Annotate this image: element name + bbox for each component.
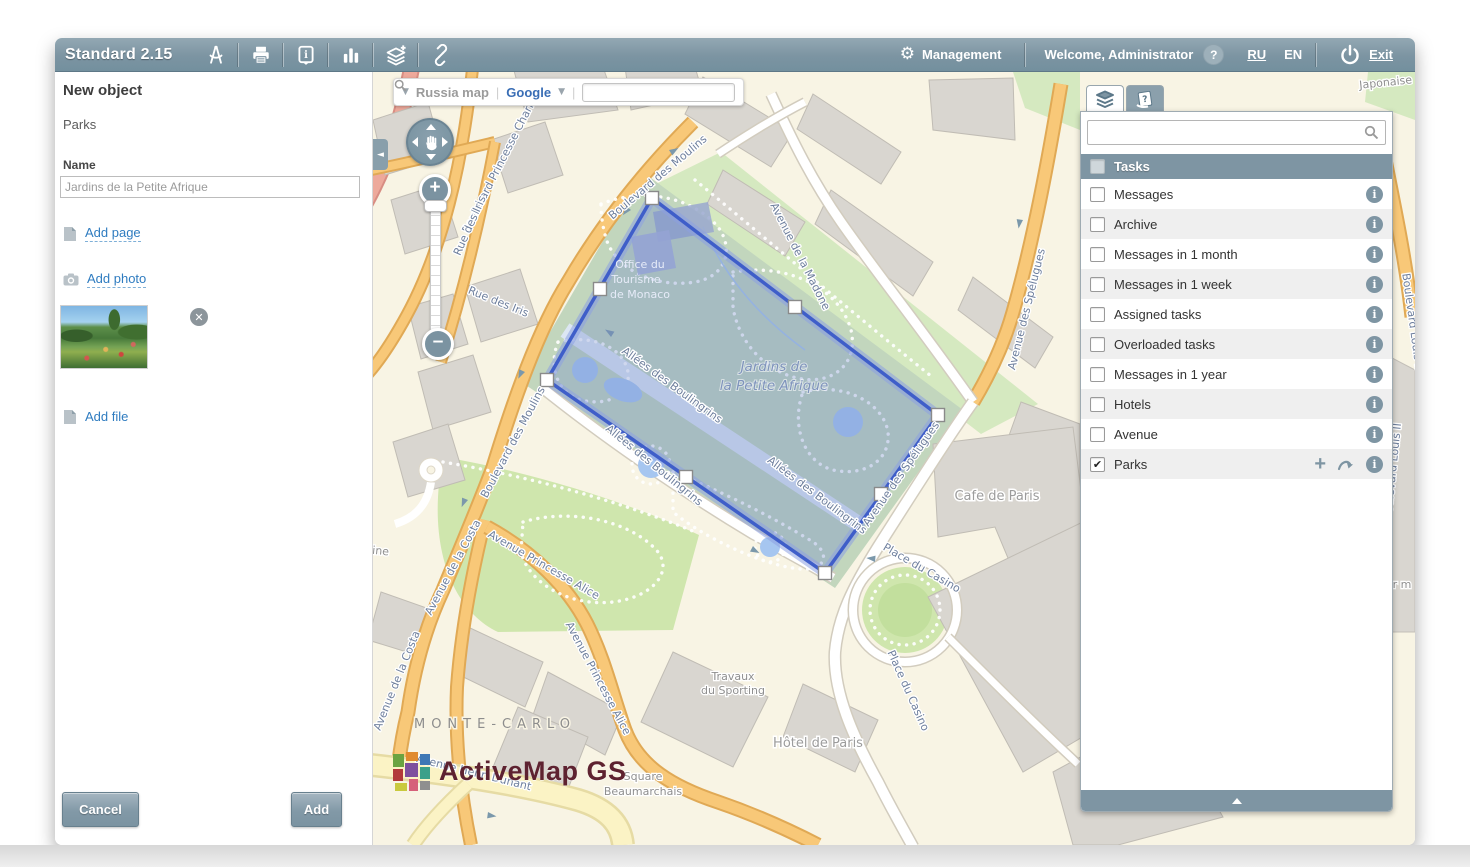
layers-icon <box>1094 89 1116 109</box>
pan-right-icon[interactable] <box>442 137 448 147</box>
search-icon <box>394 79 407 92</box>
cancel-button[interactable]: Cancel <box>62 792 139 827</box>
layer-label: Avenue <box>1114 427 1158 442</box>
layer-checkbox[interactable] <box>1090 217 1105 232</box>
help-icon[interactable]: ? <box>1203 44 1224 65</box>
layer-checkbox[interactable] <box>1090 427 1105 442</box>
zoom-slider-handle[interactable] <box>424 200 447 212</box>
name-input[interactable] <box>60 176 360 198</box>
map-label: la Petite Afrique <box>720 378 828 394</box>
toolbar-separator <box>238 43 239 67</box>
map-select[interactable]: Russia map <box>416 85 489 100</box>
task-row-avenue[interactable]: Avenuei <box>1081 419 1392 449</box>
title-bar: Standard 2.15 i <box>55 38 1415 72</box>
lang-ru-button[interactable]: RU <box>1247 47 1266 62</box>
chevron-up-icon <box>1232 798 1242 804</box>
tasks-group-header[interactable]: Tasks <box>1081 154 1392 179</box>
info-icon[interactable]: i <box>1366 456 1383 473</box>
map-label: de Monaco <box>610 288 670 301</box>
info-icon[interactable]: i <box>1366 216 1383 233</box>
collapse-panel-bar[interactable] <box>1081 790 1392 811</box>
add-object-icon[interactable]: + <box>1314 454 1326 474</box>
reply-arrow-icon[interactable] <box>1337 457 1355 471</box>
add-photo-row: Add photo <box>63 271 146 288</box>
layer-checkbox[interactable] <box>1090 187 1105 202</box>
exit-button[interactable]: Exit <box>1322 43 1415 67</box>
add-button[interactable]: Add <box>291 792 342 827</box>
svg-text:i: i <box>304 49 308 60</box>
map-label: r m <box>1393 578 1412 591</box>
app-title: Standard 2.15 <box>65 46 173 64</box>
pan-control[interactable] <box>406 118 454 166</box>
layer-name: Parks <box>63 117 96 132</box>
task-row-messages[interactable]: Messagesi <box>1081 179 1392 209</box>
print-icon[interactable] <box>244 42 278 68</box>
task-row-messages-in-1-year[interactable]: Messages in 1 yeari <box>1081 359 1392 389</box>
tasks-group-label: Tasks <box>1114 159 1150 174</box>
info-icon[interactable]: i <box>1366 306 1383 323</box>
map-label: MONTE-CARLO <box>414 717 576 732</box>
map-label: Travaux <box>710 670 755 683</box>
info-icon[interactable]: i <box>1366 246 1383 263</box>
add-file-link[interactable]: Add file <box>85 409 128 425</box>
file-icon <box>63 409 77 425</box>
task-row-messages-in-1-month[interactable]: Messages in 1 monthi <box>1081 239 1392 269</box>
panel-title: New object <box>63 82 142 99</box>
power-icon <box>1338 43 1362 67</box>
window-bottom-shadow <box>0 845 1470 867</box>
layer-checkbox[interactable] <box>1090 307 1105 322</box>
toolbar-icons: i <box>199 38 458 71</box>
task-row-assigned-tasks[interactable]: Assigned tasksi <box>1081 299 1392 329</box>
layer-label: Archive <box>1114 217 1157 232</box>
zoom-out-button[interactable]: – <box>422 328 454 360</box>
info-icon[interactable]: i <box>1366 396 1383 413</box>
toolbar-separator <box>283 43 284 67</box>
info-icon[interactable]: i <box>1366 276 1383 293</box>
map-search-input[interactable] <box>582 83 735 102</box>
new-object-panel: New object Parks Name Add page Add photo… <box>55 72 373 845</box>
statistics-icon[interactable] <box>334 42 368 68</box>
info-icon[interactable]: i <box>1366 426 1383 443</box>
camera-icon <box>63 273 79 286</box>
layer-label: Messages in 1 month <box>1114 247 1238 262</box>
activemap-logo: ActiveMap GS <box>391 750 627 792</box>
task-layer-list: MessagesiArchiveiMessages in 1 monthiMes… <box>1081 179 1392 479</box>
activemap-logo-icon <box>391 750 433 792</box>
add-layer-icon[interactable] <box>379 42 413 68</box>
gear-icon: ⚙ <box>900 46 915 63</box>
info-book-icon[interactable]: i <box>289 42 323 68</box>
layer-checkbox[interactable] <box>1090 367 1105 382</box>
layer-label: Assigned tasks <box>1114 307 1201 322</box>
name-label: Name <box>63 158 96 172</box>
map-label: Jardins de <box>738 359 808 375</box>
exit-label: Exit <box>1369 47 1393 62</box>
map-label: Office du <box>615 258 665 271</box>
task-row-archive[interactable]: Archivei <box>1081 209 1392 239</box>
page-icon <box>63 226 77 242</box>
management-button[interactable]: ⚙ Management <box>882 46 1020 63</box>
legend-help-icon: ? <box>1134 89 1156 109</box>
layer-checkbox[interactable]: ✔ <box>1090 457 1105 472</box>
remove-photo-icon[interactable]: ✕ <box>190 308 208 326</box>
app-window: Standard 2.15 i <box>55 38 1415 845</box>
separator: | <box>496 85 499 100</box>
hand-icon <box>422 133 442 153</box>
chevron-down-icon[interactable]: ▼ <box>558 87 565 97</box>
layers-panel: ? Tasks MessagesiArchiveiMessages in 1 m… <box>1080 85 1393 812</box>
toolbar-separator <box>328 43 329 67</box>
layer-label: Overloaded tasks <box>1114 337 1215 352</box>
pan-left-icon[interactable] <box>412 137 418 147</box>
tasks-group-checkbox[interactable] <box>1090 159 1105 174</box>
lang-en-button[interactable]: EN <box>1284 47 1302 62</box>
layer-label: Messages in 1 year <box>1114 367 1227 382</box>
layer-label: Messages <box>1114 187 1173 202</box>
task-row-overloaded-tasks[interactable]: Overloaded tasksi <box>1081 329 1392 359</box>
pan-up-icon[interactable] <box>426 124 436 130</box>
toolbar-separator <box>1025 43 1026 67</box>
tab-layers[interactable] <box>1086 85 1124 112</box>
photo-thumbnail[interactable] <box>60 305 148 369</box>
add-file-row: Add file <box>63 409 128 425</box>
map-label: Tourisme <box>610 273 661 286</box>
layer-checkbox[interactable] <box>1090 337 1105 352</box>
info-icon[interactable]: i <box>1366 186 1383 203</box>
map-label: Square <box>624 770 663 783</box>
add-page-link[interactable]: Add page <box>85 225 141 242</box>
search-icon <box>1364 125 1379 140</box>
map-label: Cafe de Paris <box>954 489 1039 504</box>
layers-panel-body: Tasks MessagesiArchiveiMessages in 1 mon… <box>1080 111 1393 812</box>
welcome-area: Welcome, Administrator ? <box>1031 44 1239 65</box>
panel-tabs: ? <box>1086 85 1164 112</box>
collapse-panel-button[interactable]: ◄ <box>373 139 388 170</box>
info-icon[interactable]: i <box>1366 336 1383 353</box>
measure-compass-icon[interactable] <box>199 42 233 68</box>
layer-label: Hotels <box>1114 397 1151 412</box>
layer-checkbox[interactable] <box>1090 277 1105 292</box>
task-row-parks[interactable]: ✔Parks+i <box>1081 449 1392 479</box>
separator: | <box>572 85 575 100</box>
add-photo-link[interactable]: Add photo <box>87 271 146 288</box>
task-row-messages-in-1-week[interactable]: Messages in 1 weeki <box>1081 269 1392 299</box>
layer-label: Messages in 1 week <box>1114 277 1232 292</box>
welcome-text: Welcome, Administrator <box>1045 47 1194 62</box>
share-link-icon[interactable] <box>424 42 458 68</box>
map-label: Hôtel de Paris <box>773 736 863 751</box>
info-icon[interactable]: i <box>1366 366 1383 383</box>
provider-select[interactable]: Google <box>506 85 551 100</box>
activemap-logo-text: ActiveMap GS <box>439 756 627 787</box>
task-row-hotels[interactable]: Hotelsi <box>1081 389 1392 419</box>
add-page-row: Add page <box>63 225 141 242</box>
pan-down-icon[interactable] <box>426 154 436 160</box>
layer-checkbox[interactable] <box>1090 397 1105 412</box>
toolbar-separator <box>418 43 419 67</box>
map-label: du Sporting <box>701 684 765 697</box>
management-label: Management <box>922 47 1001 62</box>
toolbar-separator <box>1316 43 1317 67</box>
titlebar-right: ⚙ Management Welcome, Administrator ? RU… <box>882 38 1415 71</box>
map-source-bar: ▼ Russia map | Google ▼ | <box>393 78 744 106</box>
toolbar-separator <box>373 43 374 67</box>
layer-label: Parks <box>1114 457 1147 472</box>
tab-legend[interactable]: ? <box>1126 85 1164 112</box>
layer-checkbox[interactable] <box>1090 247 1105 262</box>
layers-search-input[interactable] <box>1087 120 1386 145</box>
zoom-slider-track[interactable] <box>430 205 441 333</box>
